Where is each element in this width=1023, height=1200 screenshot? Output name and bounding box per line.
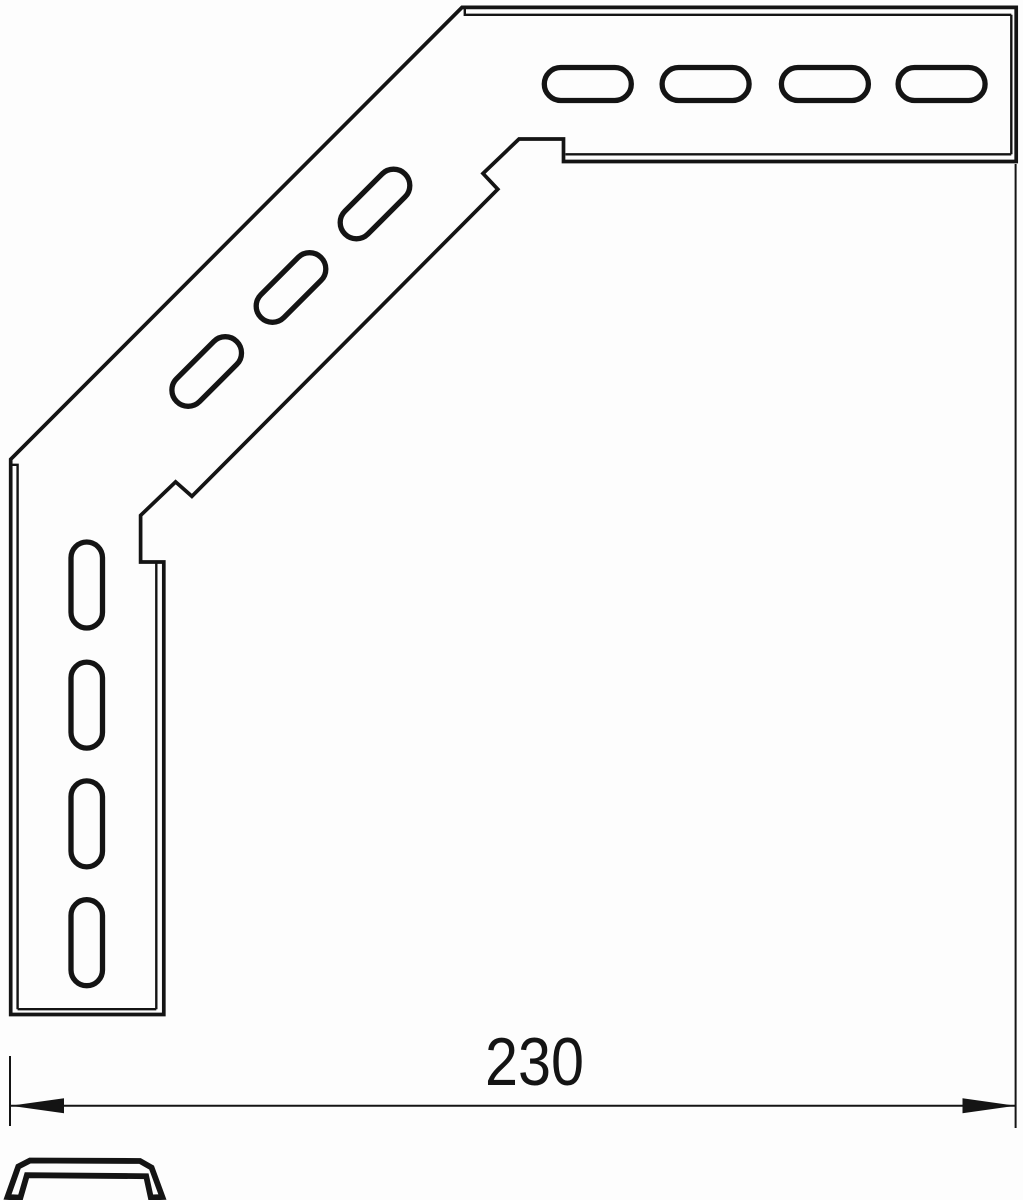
svg-text:230: 230 [485,1024,584,1100]
